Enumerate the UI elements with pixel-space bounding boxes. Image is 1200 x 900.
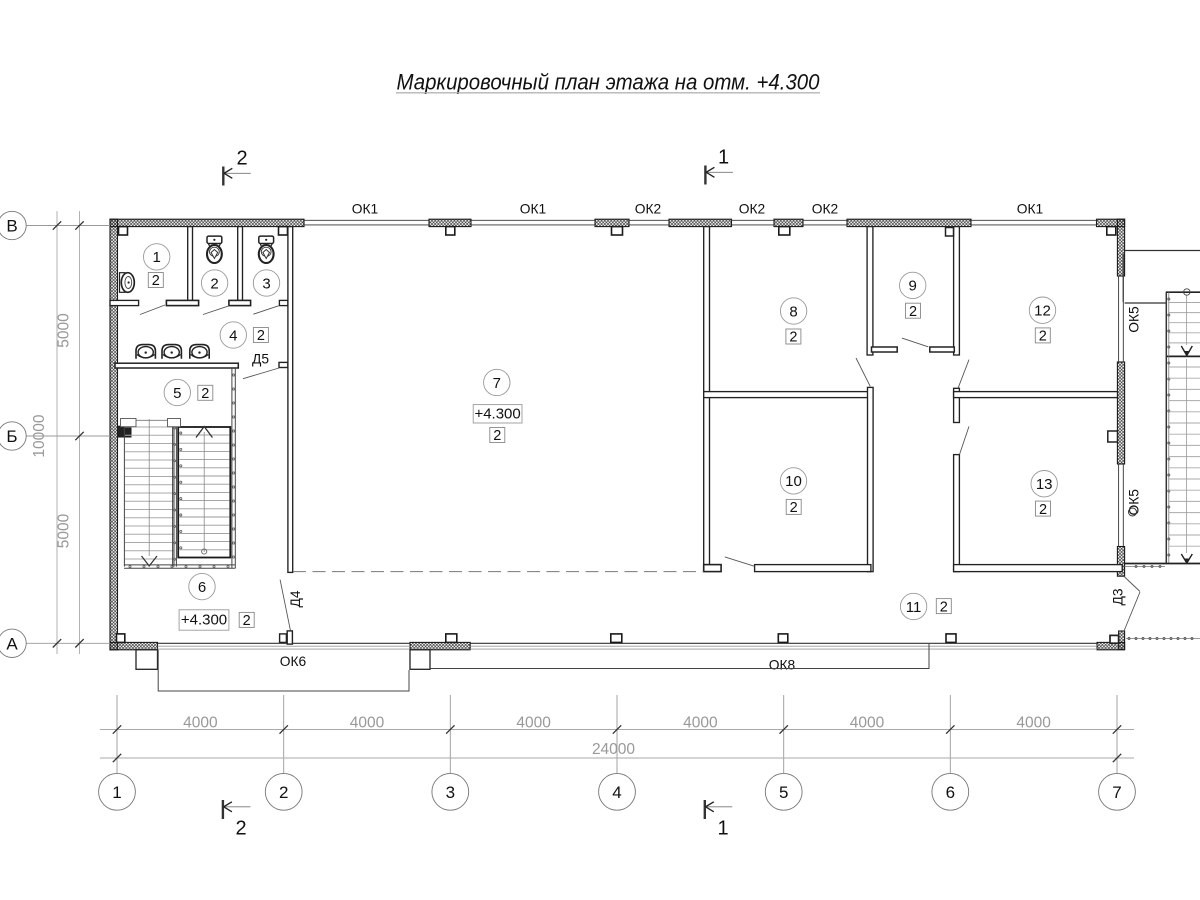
svg-text:4: 4	[612, 783, 621, 802]
svg-text:5000: 5000	[56, 513, 73, 548]
svg-text:4000: 4000	[1016, 715, 1051, 732]
svg-text:+4.300: +4.300	[474, 406, 520, 423]
svg-text:24000: 24000	[592, 741, 635, 758]
svg-text:9: 9	[909, 278, 917, 295]
svg-text:2: 2	[493, 428, 501, 444]
svg-text:13: 13	[1036, 476, 1053, 493]
svg-text:5: 5	[173, 385, 181, 402]
svg-text:10: 10	[785, 473, 802, 490]
svg-text:11: 11	[906, 599, 922, 616]
svg-text:2: 2	[790, 500, 798, 516]
svg-text:Д5: Д5	[252, 352, 269, 367]
svg-text:2: 2	[1039, 502, 1047, 518]
svg-text:2: 2	[279, 783, 288, 802]
svg-text:2: 2	[789, 330, 797, 346]
svg-text:10000: 10000	[31, 414, 48, 457]
svg-text:5: 5	[779, 783, 788, 802]
svg-text:6: 6	[946, 783, 955, 802]
svg-text:4000: 4000	[850, 715, 885, 732]
svg-text:4: 4	[229, 327, 237, 344]
svg-text:Д4: Д4	[288, 590, 303, 607]
svg-text:ОК8: ОК8	[769, 658, 796, 673]
svg-text:1: 1	[112, 783, 121, 802]
svg-text:2: 2	[152, 273, 160, 289]
svg-text:1: 1	[717, 818, 728, 840]
svg-text:ОК6: ОК6	[280, 654, 307, 669]
svg-text:4000: 4000	[183, 715, 218, 732]
svg-text:ОК1: ОК1	[1017, 202, 1043, 217]
svg-text:ОК1: ОК1	[520, 202, 546, 217]
svg-text:Б: Б	[6, 427, 17, 446]
svg-text:4000: 4000	[683, 715, 718, 732]
svg-text:3: 3	[262, 275, 270, 292]
svg-text:ОК2: ОК2	[812, 202, 838, 217]
svg-text:1: 1	[153, 249, 161, 266]
svg-text:2: 2	[940, 599, 948, 615]
svg-text:7: 7	[493, 375, 501, 392]
svg-text:4000: 4000	[350, 715, 385, 732]
svg-text:ОК2: ОК2	[739, 202, 765, 217]
svg-text:2: 2	[1039, 329, 1047, 345]
svg-text:2: 2	[236, 147, 247, 169]
svg-text:3: 3	[446, 783, 455, 802]
svg-text:2: 2	[210, 275, 218, 292]
svg-text:12: 12	[1034, 303, 1051, 320]
svg-text:8: 8	[789, 303, 797, 320]
svg-text:2: 2	[235, 818, 246, 840]
svg-text:6: 6	[198, 579, 206, 596]
svg-text:5000: 5000	[56, 313, 73, 348]
svg-text:2: 2	[909, 304, 917, 320]
svg-text:2: 2	[243, 613, 251, 629]
svg-text:1: 1	[718, 147, 729, 169]
svg-text:+4.300: +4.300	[181, 612, 227, 629]
svg-text:ОК5: ОК5	[1127, 306, 1142, 333]
svg-text:ОК2: ОК2	[635, 202, 661, 217]
svg-text:А: А	[6, 634, 18, 653]
svg-text:В: В	[6, 217, 17, 236]
svg-text:7: 7	[1112, 783, 1121, 802]
svg-text:ОК1: ОК1	[352, 202, 378, 217]
svg-text:Д3: Д3	[1110, 588, 1125, 605]
svg-text:4000: 4000	[516, 715, 551, 732]
svg-text:2: 2	[257, 328, 265, 344]
svg-text:2: 2	[201, 386, 209, 402]
svg-text:Маркировочный план этажа на от: Маркировочный план этажа на отм. +4.300	[397, 70, 820, 95]
